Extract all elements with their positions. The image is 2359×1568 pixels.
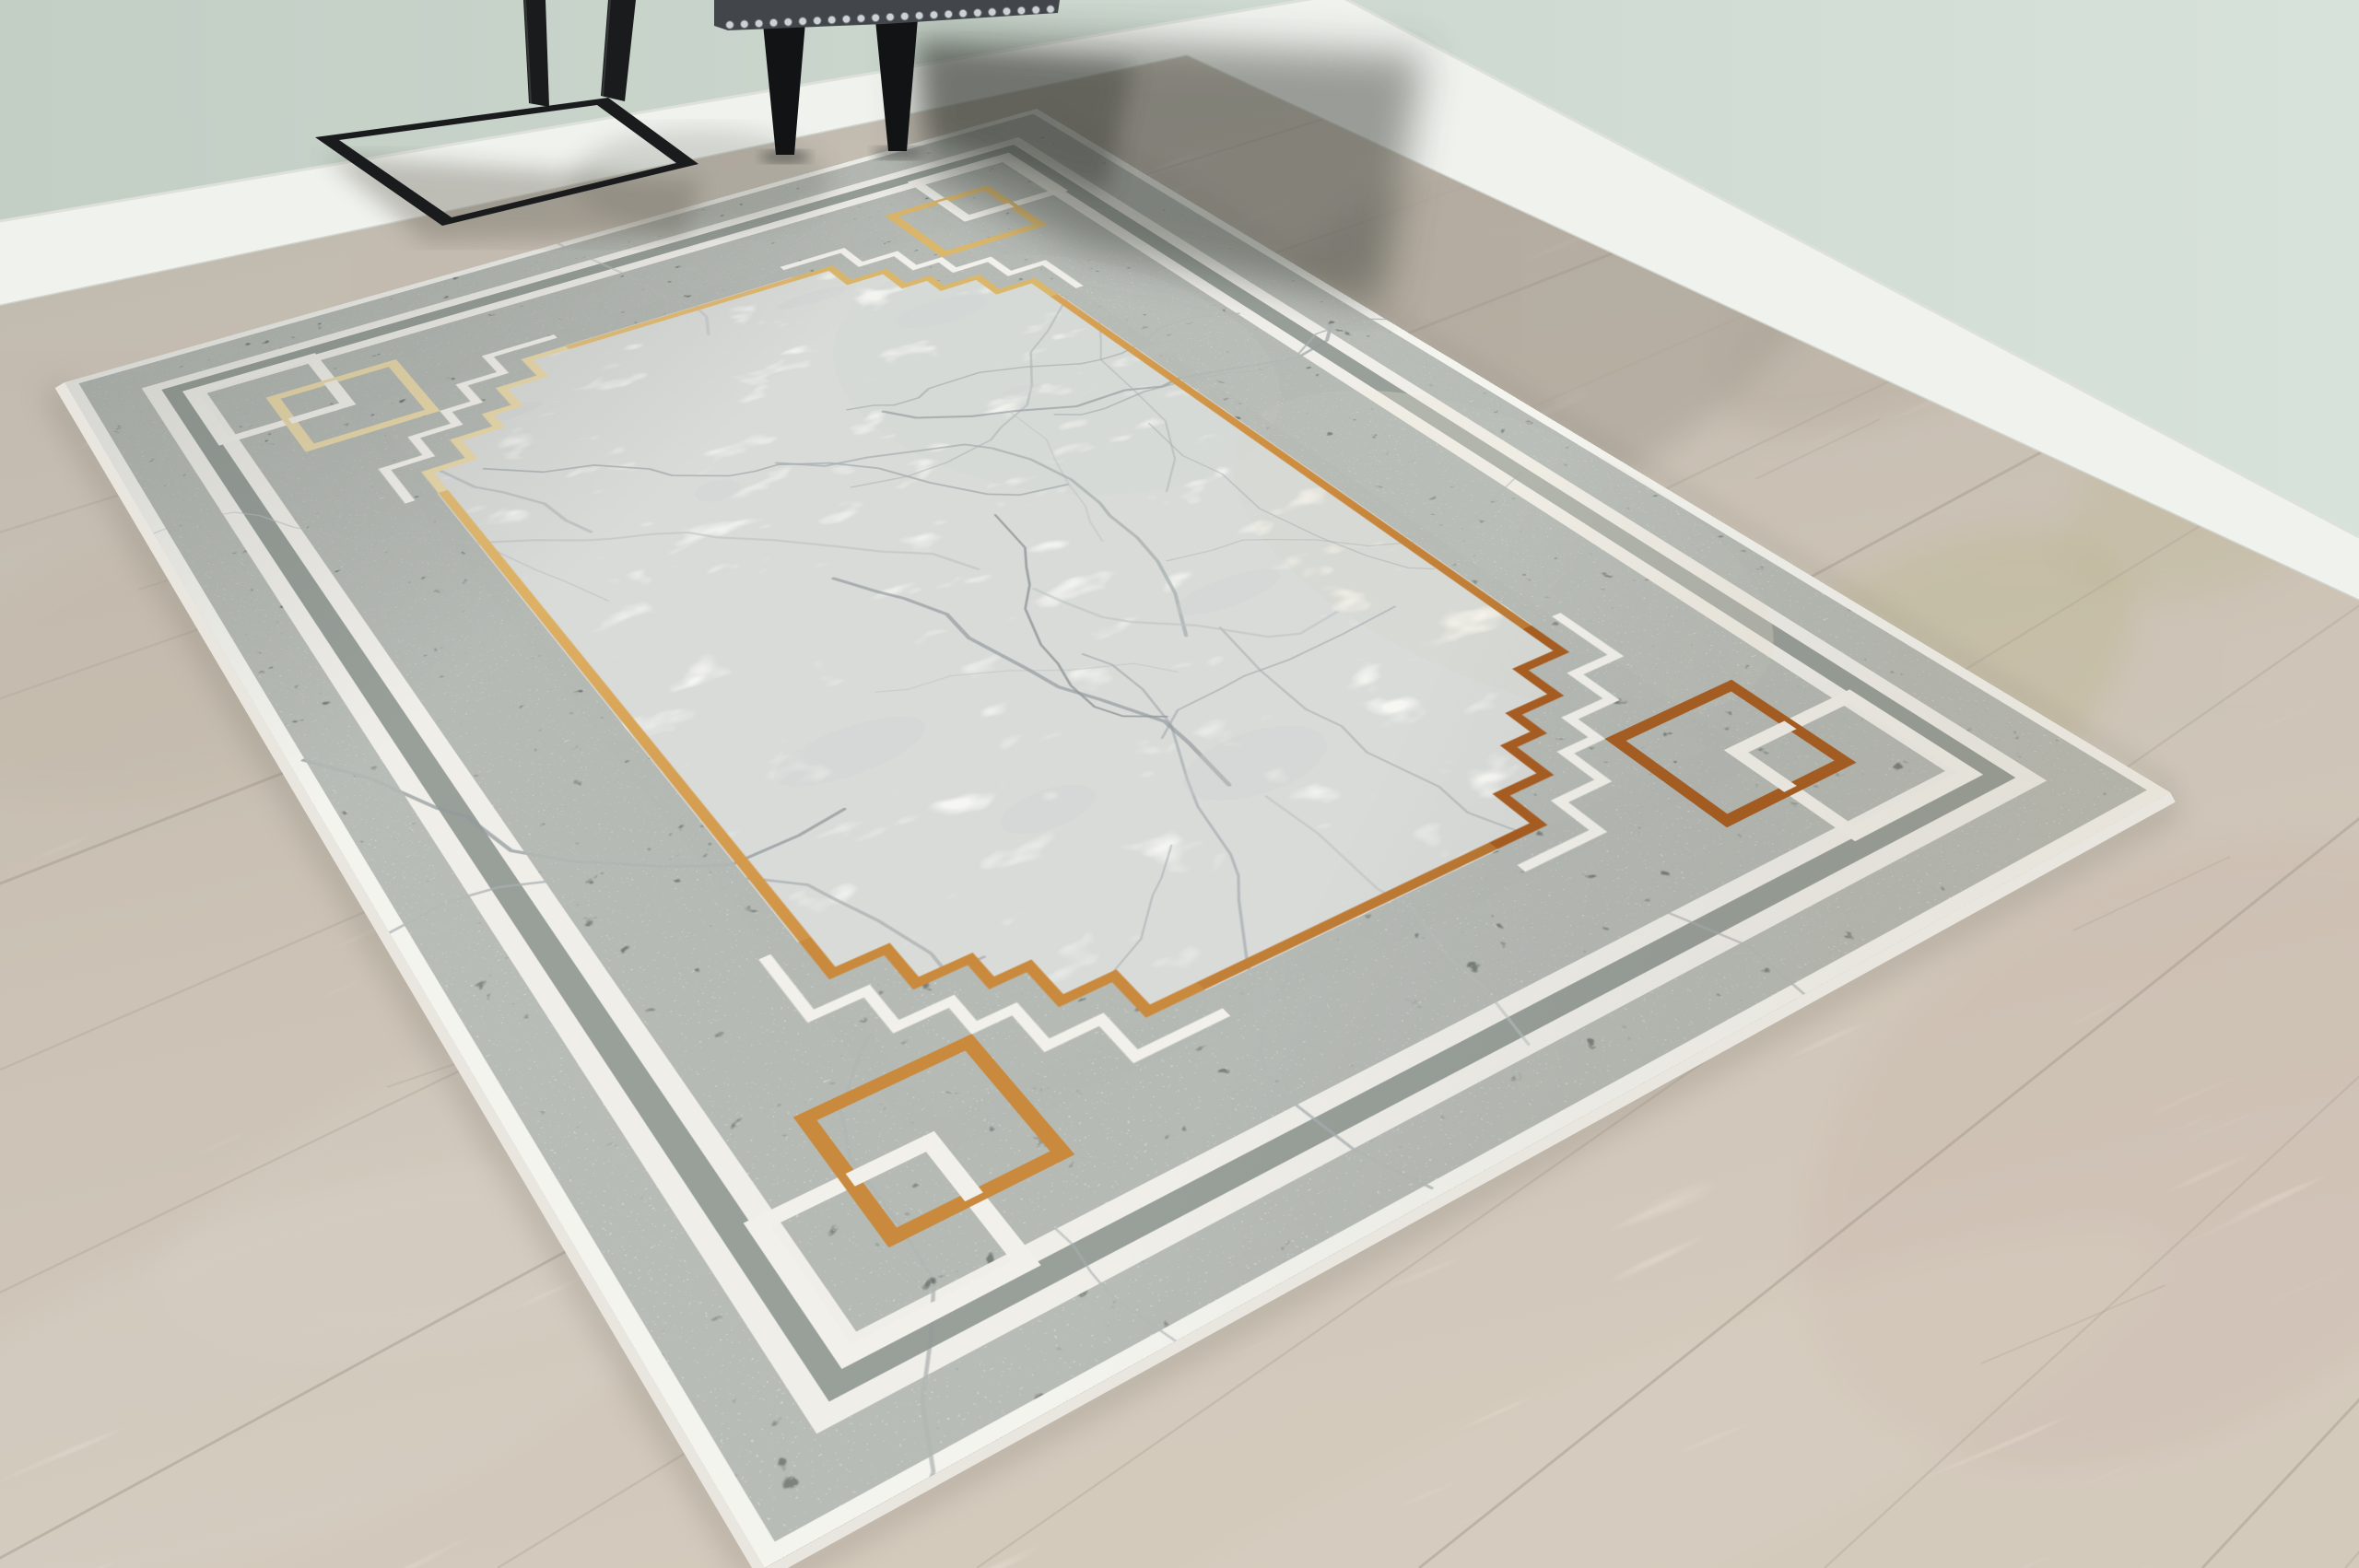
chair-leg bbox=[763, 22, 805, 155]
nailhead-stud bbox=[726, 21, 734, 29]
nailhead-stud bbox=[901, 12, 910, 20]
nailhead-stud bbox=[945, 10, 953, 18]
nailhead-stud bbox=[857, 15, 865, 23]
nailhead-stud bbox=[769, 18, 778, 27]
nailhead-stud bbox=[930, 11, 938, 19]
nailhead-stud bbox=[872, 14, 880, 22]
nailhead-stud bbox=[755, 19, 763, 28]
nailhead-stud bbox=[842, 16, 851, 24]
nailhead-stud bbox=[741, 20, 749, 29]
nailhead-stud bbox=[1047, 6, 1055, 14]
nailhead-stud bbox=[799, 18, 807, 26]
nailhead-stud bbox=[959, 9, 968, 18]
nailhead-stud bbox=[827, 16, 836, 24]
nailhead-stud bbox=[915, 12, 923, 20]
furniture-layer bbox=[0, 0, 2359, 1568]
nailhead-stud bbox=[974, 9, 982, 18]
nailhead-stud bbox=[1003, 7, 1011, 16]
nailhead-stud bbox=[988, 8, 996, 17]
nailhead-stud bbox=[886, 13, 895, 21]
nailhead-stud bbox=[784, 18, 792, 27]
nailhead-stud bbox=[1017, 6, 1026, 15]
black-metal-side-table bbox=[315, 0, 702, 241]
nailhead-stud bbox=[1032, 6, 1040, 15]
room-photo bbox=[0, 0, 2359, 1568]
nailhead-stud bbox=[814, 17, 822, 25]
chair-leg bbox=[875, 18, 918, 151]
